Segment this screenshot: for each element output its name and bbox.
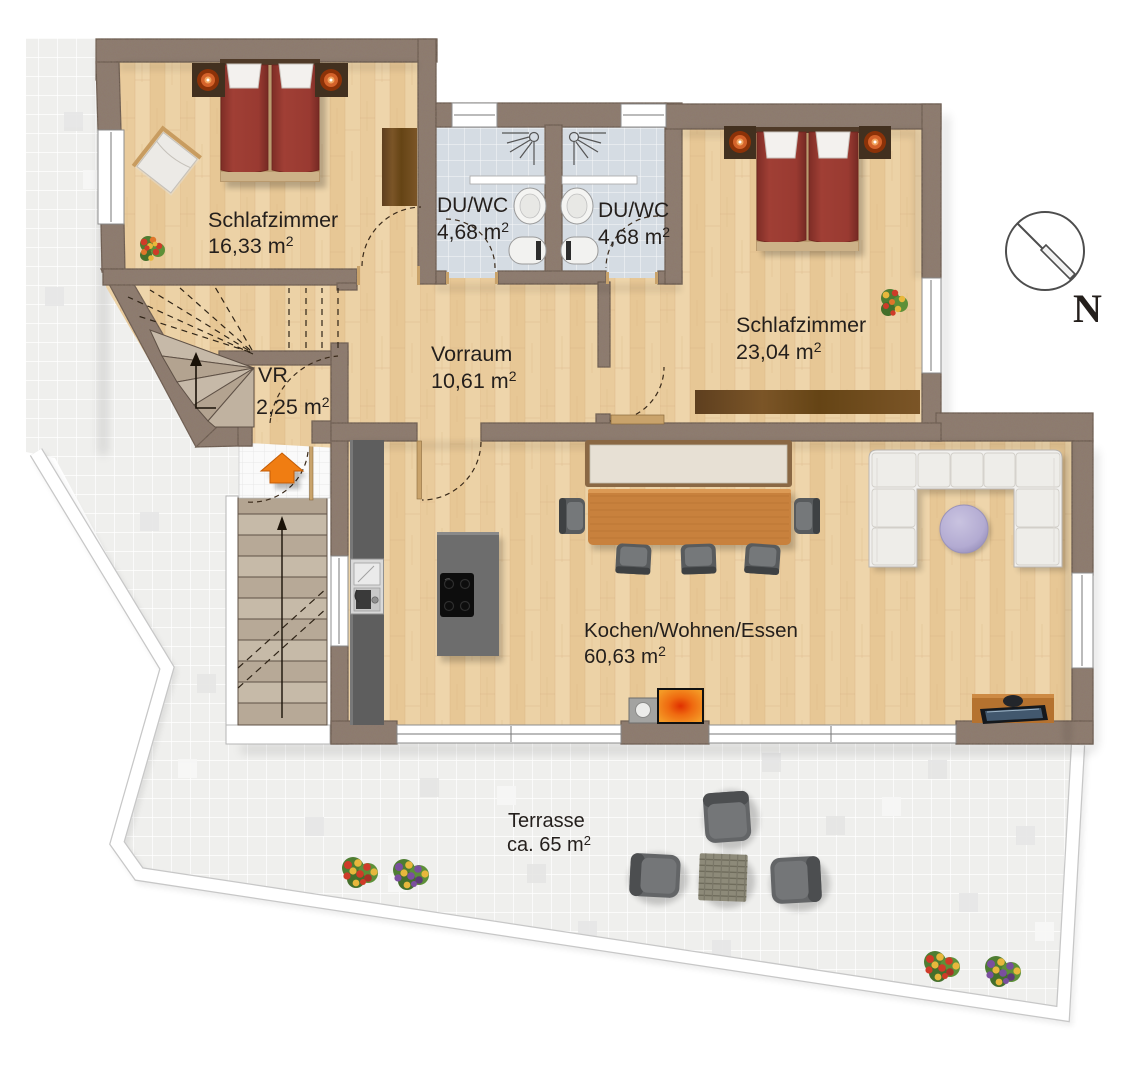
svg-text:VR: VR (258, 363, 288, 387)
svg-text:4,68 m2: 4,68 m2 (437, 219, 509, 244)
svg-text:10,61 m2: 10,61 m2 (431, 368, 517, 393)
svg-text:Vorraum: Vorraum (431, 342, 512, 366)
svg-text:Schlafzimmer: Schlafzimmer (736, 313, 866, 337)
svg-text:16,33 m2: 16,33 m2 (208, 233, 294, 258)
svg-text:4,68 m2: 4,68 m2 (598, 224, 670, 249)
svg-text:Kochen/Wohnen/Essen: Kochen/Wohnen/Essen (584, 619, 798, 642)
svg-text:60,63 m2: 60,63 m2 (584, 643, 666, 668)
svg-text:DU/WC: DU/WC (598, 199, 669, 222)
svg-text:ca. 65 m2: ca. 65 m2 (507, 833, 591, 856)
svg-text:Terrasse: Terrasse (508, 810, 585, 832)
svg-text:2,25 m2: 2,25 m2 (256, 394, 330, 419)
svg-text:DU/WC: DU/WC (437, 194, 508, 217)
svg-text:N: N (1073, 286, 1102, 331)
svg-text:23,04 m2: 23,04 m2 (736, 339, 822, 364)
svg-text:Schlafzimmer: Schlafzimmer (208, 208, 338, 232)
